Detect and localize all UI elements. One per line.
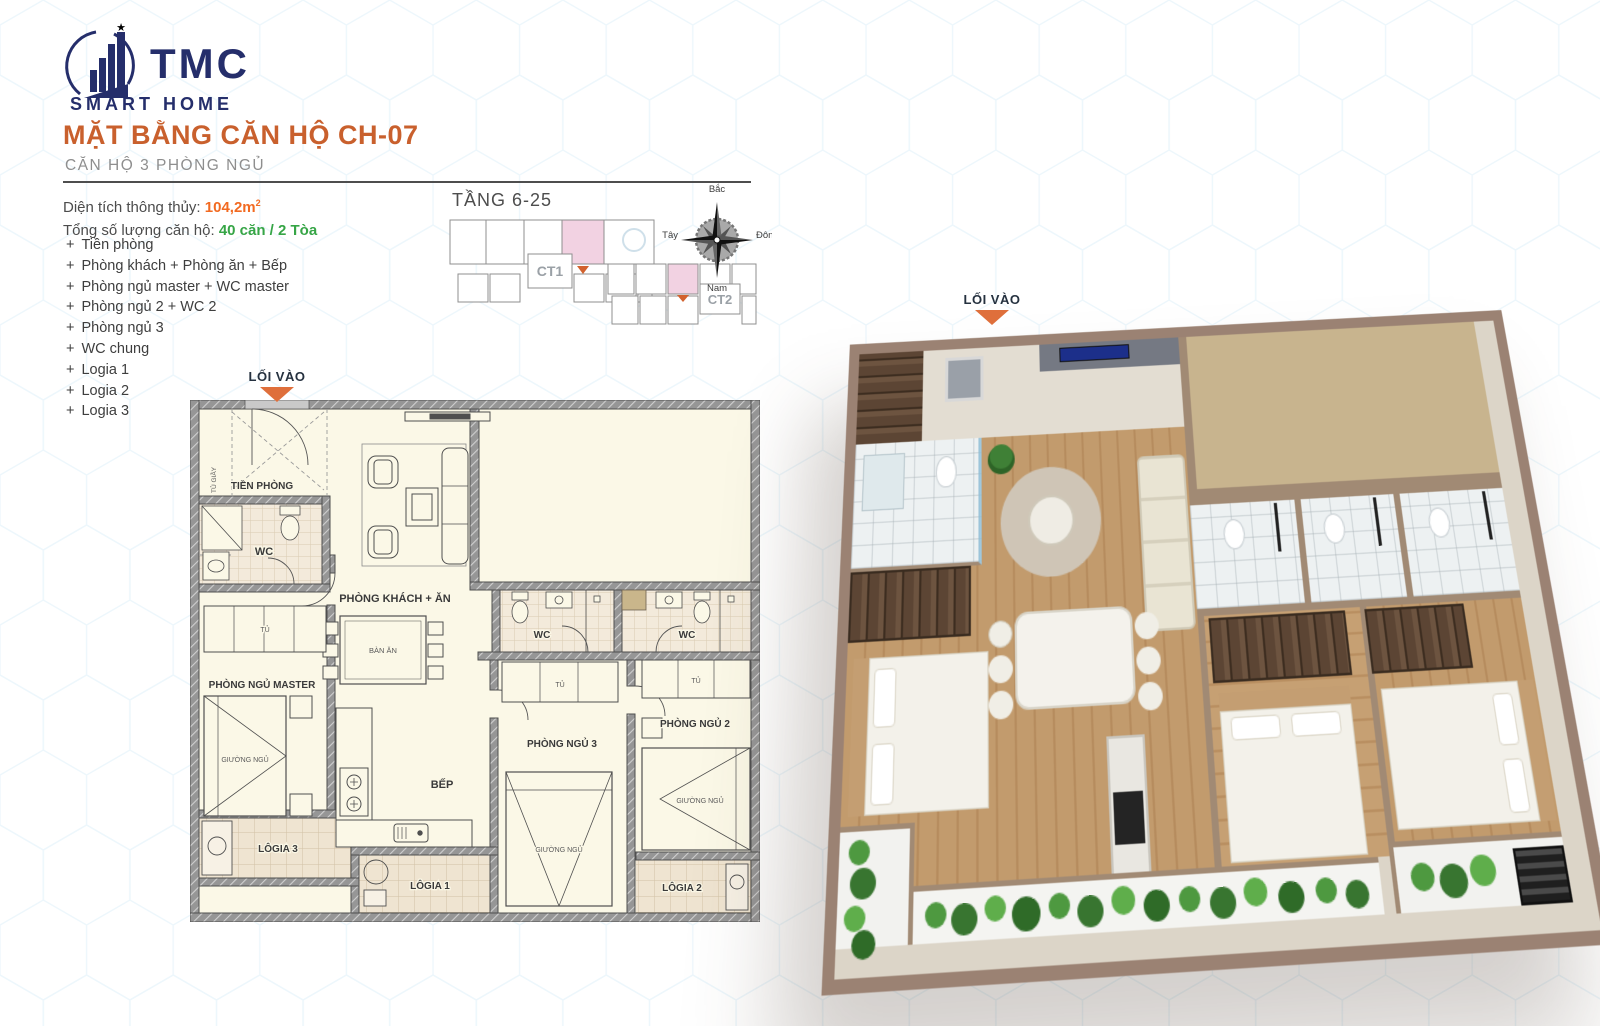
entrance-label-3d: LỐI VÀO: [932, 292, 1052, 307]
keyplan-ct1-label: CT1: [537, 263, 564, 279]
wall-art-3d: [945, 356, 984, 402]
area-value: 104,2m: [205, 199, 256, 216]
floorplan-3d: LỐI VÀO: [822, 288, 1562, 988]
entrance-marker-3d: LỐI VÀO: [932, 292, 1052, 325]
room-list-item: +Logia 3: [66, 401, 289, 422]
logia2-3d: [1388, 831, 1573, 913]
room-list-item-label: Logia 2: [81, 383, 129, 399]
logia3-3d: [836, 823, 915, 950]
shower-tray-3d: [862, 453, 906, 511]
room-label-master: PHÒNG NGỦ MASTER: [209, 678, 316, 691]
room-list-item-label: Phòng ngủ 2 + WC 2: [81, 299, 216, 315]
room-label-logia1: LÔGIA 1: [410, 879, 450, 892]
label-bed-master: GIƯỜNG NGỦ: [221, 755, 268, 764]
room-label-living: PHÒNG KHÁCH + ĂN: [339, 592, 451, 605]
title-divider: [63, 181, 751, 183]
room-list-item-label: Phòng ngủ master + WC master: [81, 279, 289, 295]
dining-table-3d: [1014, 606, 1136, 711]
room-list-item: +Phòng ngủ 2 + WC 2: [66, 297, 289, 318]
room-label-wc-2: WC: [679, 630, 696, 641]
compass-north-label: Bắc: [709, 184, 726, 195]
floorplan-2d: TIỀN PHÒNG TỦ GIẦY WC PHÒNG KHÁCH + ĂN B…: [190, 400, 760, 922]
logo-text: TMC: [150, 40, 250, 88]
bedroom3-wardrobe-3d: [1208, 610, 1352, 683]
room-list-item: +Phòng ngủ 3: [66, 318, 289, 339]
bedroom3-bed-3d: [1220, 703, 1369, 863]
label-dining-table: BÀN ĂN: [369, 646, 397, 655]
bathrooms-3d: [1189, 481, 1521, 616]
label-bed-bedroom3: GIƯỜNG NGỦ: [535, 845, 582, 854]
label-wardrobe-bed2: TỦ: [691, 676, 700, 685]
floorplan-brochure-page: ★ TMC SMART HOME MẶT BẰNG CĂN HỘ CH-07 C…: [0, 0, 1600, 1026]
bullet-plus: +: [66, 403, 74, 419]
bullet-plus: +: [66, 362, 74, 378]
entrance-marker-2d: LỐI VÀO: [217, 369, 337, 402]
stove-3d: [1113, 791, 1145, 845]
bullet-plus: +: [66, 299, 74, 315]
master-wardrobe-3d: [848, 566, 971, 643]
label-wardrobe-bed3: TỦ: [555, 680, 564, 689]
area-sup: 2: [256, 198, 261, 208]
compass-rose: Bắc Nam Đông Tây: [662, 178, 772, 294]
ac-units-3d: [1512, 845, 1573, 905]
bullet-plus: +: [66, 341, 74, 357]
bullet-plus: +: [66, 383, 74, 399]
area-label: Diện tích thông thủy:: [63, 199, 201, 216]
room-label-logia3: LÔGIA 3: [258, 842, 298, 855]
entrance-arrow-3d-icon: [975, 310, 1009, 325]
room-list-item-label: WC chung: [81, 341, 149, 357]
label-wardrobe-master: TỦ: [260, 625, 269, 634]
toilet-3d: [936, 456, 957, 488]
room-label-tien-phong: TIỀN PHÒNG: [231, 479, 293, 492]
compass-south-label: Nam: [707, 283, 727, 294]
entrance-arrow-icon: [260, 387, 294, 402]
room-label-wc-master: WC: [255, 546, 273, 558]
room-list-item: +Tiền phòng: [66, 235, 289, 256]
area-line: Diện tích thông thủy: 104,2m2: [63, 192, 317, 219]
keyplan-ct2-label: CT2: [708, 292, 733, 307]
floor-range-label: TẦNG 6-25: [452, 190, 552, 211]
bullet-plus: +: [66, 237, 74, 253]
compass-west-label: Tây: [662, 230, 678, 241]
entrance-label-2d: LỐI VÀO: [217, 369, 337, 384]
room-list-item-label: Logia 3: [81, 403, 129, 419]
room-label-wc-shared: WC: [534, 630, 551, 641]
room-label-bedroom3: PHÒNG NGỦ 3: [527, 737, 597, 750]
room-list-item: +Phòng ngủ master + WC master: [66, 277, 289, 298]
bedroom2-bed-3d: [1381, 680, 1541, 830]
page-title: MẶT BẰNG CĂN HỘ CH-07: [63, 120, 419, 151]
entry-wardrobe-3d: [856, 351, 924, 445]
room-list-item: +Phòng khách + Phòng ăn + Bếp: [66, 256, 289, 277]
room-label-logia2: LÔGIA 2: [662, 881, 702, 894]
bullet-plus: +: [66, 258, 74, 274]
label-bed-bedroom2: GIƯỜNG NGỦ: [676, 796, 723, 805]
room-list-item-label: Tiền phòng: [81, 237, 153, 253]
logo-subtext: SMART HOME: [70, 94, 233, 115]
master-bed-3d: [864, 651, 989, 816]
bullet-plus: +: [66, 320, 74, 336]
compass-east-label: Đông: [756, 230, 772, 241]
page-subtitle: CĂN HỘ 3 PHÒNG NGỦ: [65, 157, 265, 175]
room-list-item: +WC chung: [66, 339, 289, 360]
adjacent-slab-3d: [1178, 322, 1501, 499]
room-label-bedroom2: PHÒNG NGỦ 2: [660, 717, 730, 730]
room-list-item-label: Phòng khách + Phòng ăn + Bếp: [81, 258, 287, 274]
render-3d-plan: [821, 310, 1600, 996]
svg-text:★: ★: [116, 22, 126, 34]
room-list-item-label: Logia 1: [81, 362, 129, 378]
room-list-item-label: Phòng ngủ 3: [81, 320, 163, 336]
room-label-kitchen: BẾP: [431, 778, 454, 791]
bedroom2-wardrobe-3d: [1364, 603, 1473, 673]
bullet-plus: +: [66, 279, 74, 295]
